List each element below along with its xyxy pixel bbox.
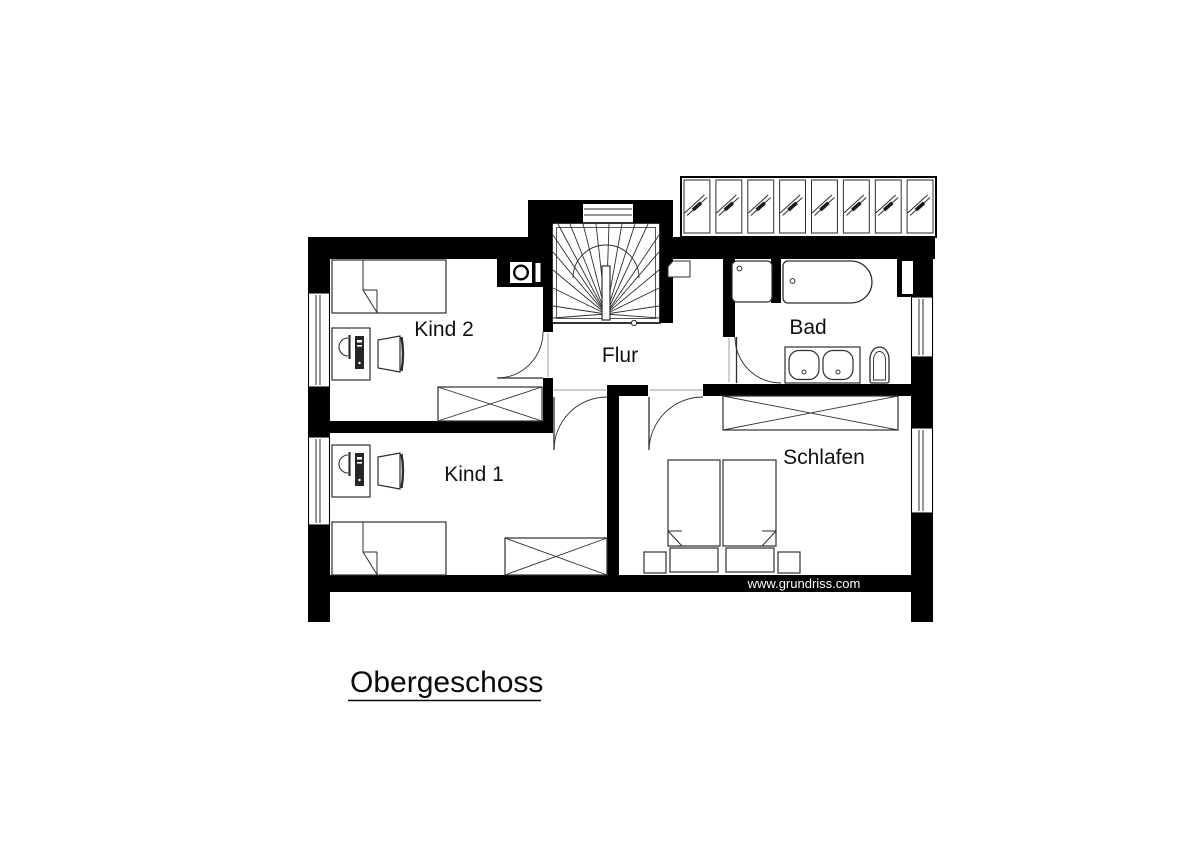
room-label-flur: Flur [602, 344, 638, 367]
door-swing-schlafen [649, 390, 703, 450]
wardrobe-icon [505, 538, 607, 575]
single-bed-icon [332, 522, 446, 575]
room-label-kind2: Kind 2 [414, 318, 474, 341]
door-swing-bad [729, 337, 781, 383]
double-washbasin-icon [785, 347, 860, 383]
wardrobe-icon [723, 396, 898, 430]
winder-staircase-icon [552, 223, 660, 326]
glass-pane-diagonal-icon [684, 180, 710, 233]
glass-pane-diagonal-icon [843, 180, 869, 233]
door-swing-kind1 [554, 390, 607, 450]
nightstand-icon [644, 552, 666, 573]
roof-windows [681, 177, 936, 237]
window-symbol-bad [912, 297, 933, 357]
watermark-text: www.grundriss.com [747, 576, 861, 591]
glass-pane-diagonal-icon [780, 180, 806, 233]
room-label-kind1: Kind 1 [444, 463, 504, 486]
wardrobe-icon [438, 387, 542, 421]
single-bed-icon [332, 260, 446, 313]
glass-pane-diagonal-icon [716, 180, 742, 233]
duct-niche [902, 261, 913, 294]
glass-pane-diagonal-icon [748, 180, 774, 233]
window-symbol-kind2 [309, 293, 330, 387]
glass-pane-diagonal-icon [907, 180, 933, 233]
desk-with-pc-icon [332, 328, 403, 380]
window-symbol-schlafen [912, 428, 933, 513]
wall-niche-symbol [668, 261, 690, 277]
room-label-bad: Bad [789, 316, 826, 339]
floorplan-page: Kind 2 Flur Bad Kind 1 Schlafen www.grun… [0, 0, 1200, 852]
room-label-schlafen: Schlafen [783, 446, 865, 469]
floor-plan-canvas: Kind 2 Flur Bad Kind 1 Schlafen www.grun… [0, 0, 1200, 852]
window-symbol-kind1 [309, 437, 330, 525]
shower-icon [732, 261, 772, 302]
glass-pane-diagonal-icon [812, 180, 838, 233]
door-swing-kind2 [497, 332, 548, 378]
glass-pane-diagonal-icon [875, 180, 901, 233]
nightstand-icon [778, 552, 800, 573]
double-bed-icon [668, 460, 776, 572]
chimney-ring-icon [510, 262, 541, 283]
floor-title: Obergeschoss [350, 666, 543, 699]
toilet-icon [870, 347, 889, 383]
schlafen-furniture [644, 396, 898, 573]
bathtub-icon [783, 261, 872, 303]
desk-with-pc-icon [332, 445, 403, 497]
